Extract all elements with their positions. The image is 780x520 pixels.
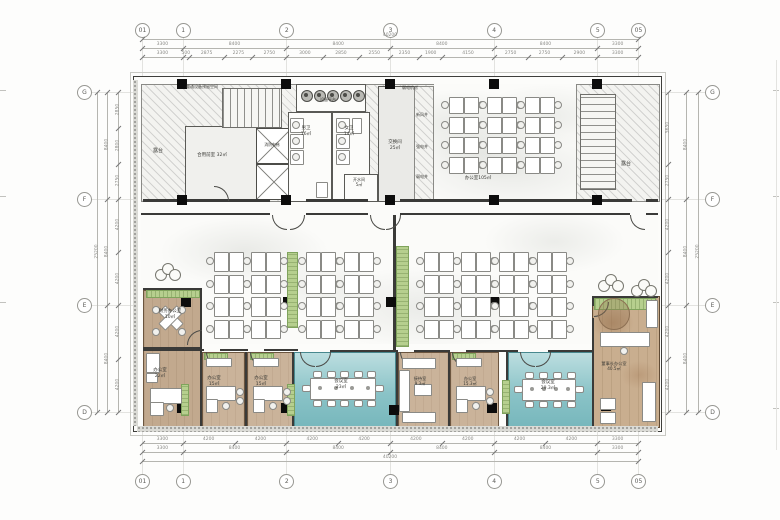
side-table	[600, 398, 616, 410]
dimension-value: 8400	[105, 235, 110, 269]
room-label: 女卫 14㎡	[319, 126, 379, 138]
chair	[206, 325, 214, 333]
chair	[479, 161, 487, 169]
interior-wall	[414, 350, 450, 352]
desk	[461, 297, 476, 317]
desk	[251, 275, 266, 295]
grid-bubble: 05	[631, 474, 646, 489]
chair	[340, 400, 349, 407]
desk	[251, 297, 266, 317]
chair	[298, 325, 306, 333]
desk	[214, 297, 229, 317]
desk-return	[456, 399, 468, 413]
dimension-value: 8400	[321, 42, 355, 47]
chair	[336, 257, 344, 265]
room-label: 会议室 29.3㎡	[518, 380, 578, 392]
desk	[306, 320, 321, 340]
desk	[487, 97, 502, 114]
chair	[416, 257, 424, 265]
dimension-value: 4200	[295, 437, 329, 442]
desk	[537, 252, 552, 272]
chair	[479, 141, 487, 149]
chair	[453, 257, 461, 265]
desk	[344, 275, 359, 295]
desk	[552, 275, 567, 295]
sofa	[402, 358, 436, 369]
desk	[266, 275, 281, 295]
room-label: 弱电机房	[380, 85, 440, 90]
planter-strip	[146, 290, 200, 298]
grid-bubble: G	[705, 85, 720, 100]
grid-bubble: 5	[590, 23, 605, 38]
chair	[243, 280, 251, 288]
desk	[229, 275, 244, 295]
desk	[464, 97, 479, 114]
workstation-cluster	[448, 95, 478, 175]
sofa	[642, 382, 656, 422]
desk	[476, 320, 491, 340]
dimension-value: 3300	[145, 446, 179, 451]
chair	[441, 161, 449, 169]
executive-desk	[600, 332, 650, 347]
desk	[359, 252, 374, 272]
dimension-value: 4200	[666, 261, 671, 295]
desk	[424, 252, 439, 272]
desk	[464, 157, 479, 174]
edge-tick	[0, 196, 6, 197]
desk	[449, 157, 464, 174]
chair	[336, 302, 344, 310]
desk	[540, 117, 555, 134]
dimension-value: 3000	[288, 51, 322, 56]
dimension-value: 4200	[399, 437, 433, 442]
dimension-value: 8400	[528, 446, 562, 451]
dimension-value: 2750	[528, 51, 562, 56]
workstation-cluster	[524, 95, 554, 175]
dimension-value: 2750	[494, 51, 528, 56]
toilet	[338, 153, 346, 161]
structural-column	[489, 79, 499, 89]
sofa	[253, 358, 279, 367]
workstation-cluster	[250, 250, 280, 340]
desk	[499, 252, 514, 272]
dimension-value: 4200	[116, 208, 121, 242]
grid-bubble: F	[77, 192, 92, 207]
interior-wall	[143, 349, 204, 351]
chair	[517, 141, 525, 149]
desk	[514, 275, 529, 295]
dimension-value: 2275	[221, 51, 255, 56]
chair	[472, 402, 480, 410]
room-label: 弱电井	[392, 174, 452, 179]
structural-column	[386, 297, 396, 307]
desk	[552, 252, 567, 272]
chair	[269, 402, 277, 410]
desk	[344, 297, 359, 317]
chair	[178, 328, 186, 336]
structural-column	[281, 79, 291, 89]
dimension-value: 4200	[116, 368, 121, 402]
desk	[537, 275, 552, 295]
desk	[552, 297, 567, 317]
desk	[525, 137, 540, 154]
desk	[514, 320, 529, 340]
desk	[461, 252, 476, 272]
grid-bubble: E	[705, 298, 720, 313]
chair	[373, 325, 381, 333]
chair	[491, 257, 499, 265]
chair	[354, 371, 363, 378]
chair	[453, 302, 461, 310]
grid-bubble: 5	[590, 474, 605, 489]
chair	[566, 325, 574, 333]
structural-column	[489, 195, 499, 205]
chair	[539, 372, 548, 379]
chair	[243, 325, 251, 333]
dimension-value: 4200	[116, 315, 121, 349]
chair	[529, 325, 537, 333]
desk	[439, 275, 454, 295]
dimension-value: 3300	[601, 51, 635, 56]
chair	[517, 121, 525, 129]
room-label: 董事长办公室 40.5㎡	[584, 361, 644, 372]
dimension-value: 4200	[554, 437, 588, 442]
dimension-value: 2550	[357, 51, 391, 56]
chair	[479, 101, 487, 109]
toilet	[292, 153, 300, 161]
grid-bubble: F	[705, 192, 720, 207]
grid-bubble: 05	[631, 23, 646, 38]
interior-wall	[646, 213, 658, 215]
sofa	[402, 412, 436, 423]
grid-bubble: 01	[135, 23, 150, 38]
dimension-value: 4200	[503, 437, 537, 442]
room-label: 消防电梯	[242, 143, 302, 148]
sofa	[206, 358, 232, 367]
dimension-line	[142, 39, 638, 40]
dimension-value: 25200	[696, 235, 701, 269]
floor-plan-canvas: 010111223344550505GGFFEEDD 4020033008400…	[0, 0, 780, 520]
desk	[251, 320, 266, 340]
grid-bubble: 3	[383, 474, 398, 489]
interior-wall	[220, 349, 248, 351]
chair	[525, 401, 534, 408]
workstation-cluster	[343, 250, 373, 340]
room-label: 办公室 15.3㎡	[440, 376, 500, 387]
desk	[487, 117, 502, 134]
dimension-value: 2875	[190, 51, 224, 56]
dimension-value: 2900	[562, 51, 596, 56]
dimension-value: 2750	[666, 164, 671, 198]
grid-bubble: D	[705, 405, 720, 420]
dimension-value: 2800	[116, 128, 121, 162]
desk	[266, 297, 281, 317]
chair	[553, 401, 562, 408]
grid-bubble: E	[77, 298, 92, 313]
desk	[359, 275, 374, 295]
dimension-value: 40200	[373, 33, 407, 38]
plant-symbol	[169, 269, 181, 281]
dimension-value: 8400	[528, 42, 562, 47]
core-stair	[222, 88, 282, 128]
dimension-value: 8400	[684, 128, 689, 162]
desk	[214, 320, 229, 340]
dimension-value: 8400	[684, 235, 689, 269]
chair	[354, 400, 363, 407]
interior-wall	[306, 199, 368, 202]
chair	[206, 280, 214, 288]
dimension-value: 4200	[451, 437, 485, 442]
chair	[206, 257, 214, 265]
desk	[514, 252, 529, 272]
dimension-value: 8400	[684, 341, 689, 375]
desk	[540, 97, 555, 114]
dimension-value: 8400	[105, 341, 110, 375]
chair	[491, 302, 499, 310]
grid-bubble: 4	[487, 474, 502, 489]
chair	[453, 280, 461, 288]
grid-bubble: 01	[135, 474, 150, 489]
chair	[554, 101, 562, 109]
chair	[327, 400, 336, 407]
desk	[214, 252, 229, 272]
chair	[327, 371, 336, 378]
desk	[439, 320, 454, 340]
chair	[554, 121, 562, 129]
grid-bubble: G	[77, 85, 92, 100]
dimension-line	[142, 461, 638, 462]
dimension-value: 4200	[666, 315, 671, 349]
chair	[222, 402, 230, 410]
cabinet	[646, 300, 658, 328]
desk	[499, 320, 514, 340]
interior-wall	[141, 213, 270, 215]
dimension-value: 4150	[451, 51, 485, 56]
desk	[306, 297, 321, 317]
chair	[517, 101, 525, 109]
desk	[359, 297, 374, 317]
dimension-value: 2850	[116, 93, 121, 127]
desk	[306, 275, 321, 295]
interior-wall	[143, 347, 202, 349]
chair	[313, 400, 322, 407]
toilet	[338, 137, 346, 145]
desk	[449, 117, 464, 134]
desk	[514, 297, 529, 317]
desk	[214, 275, 229, 295]
desk	[359, 320, 374, 340]
interior-wall	[466, 350, 518, 352]
chair	[298, 280, 306, 288]
desk	[502, 137, 517, 154]
room-label: 会议室 23㎡	[311, 379, 371, 391]
desk	[344, 320, 359, 340]
chair	[373, 280, 381, 288]
workstation-cluster	[305, 250, 335, 340]
room-label: 露台	[596, 161, 656, 168]
interior-wall	[143, 199, 270, 202]
room-label: 开水间 5㎡	[329, 177, 389, 187]
chair	[416, 280, 424, 288]
desk	[502, 157, 517, 174]
desk	[537, 297, 552, 317]
dimension-value: 4200	[666, 208, 671, 242]
grid-bubble: 1	[176, 23, 191, 38]
interior-wall	[306, 213, 368, 215]
desk	[251, 252, 266, 272]
desk	[464, 137, 479, 154]
dimension-value: 3300	[601, 437, 635, 442]
grid-bubble: 4	[487, 23, 502, 38]
south-exterior-wall	[137, 426, 658, 432]
grid-bubble: 1	[176, 474, 191, 489]
chair	[441, 101, 449, 109]
interior-wall	[264, 349, 298, 351]
chair	[566, 280, 574, 288]
room-label: 财务办公室 10㎡	[140, 309, 200, 321]
sink-counter	[316, 182, 328, 198]
dimension-value: 3300	[601, 446, 635, 451]
dimension-value: 4200	[666, 368, 671, 402]
chair	[302, 385, 311, 392]
desk	[229, 297, 244, 317]
desk	[537, 320, 552, 340]
chair	[283, 388, 291, 396]
chair	[298, 257, 306, 265]
grid-bubble: D	[77, 405, 92, 420]
chair	[517, 161, 525, 169]
desk	[476, 275, 491, 295]
chair	[206, 302, 214, 310]
chair	[539, 401, 548, 408]
desk	[321, 252, 336, 272]
interior-wall	[592, 318, 594, 426]
room-label: 合用前室 32㎡	[182, 153, 242, 159]
desk	[439, 252, 454, 272]
room-label: 强电井	[392, 144, 452, 149]
chair	[491, 280, 499, 288]
chair	[416, 302, 424, 310]
structural-column	[177, 195, 187, 205]
chair	[236, 388, 244, 396]
chair	[280, 325, 288, 333]
interior-wall	[245, 352, 247, 426]
chair	[453, 325, 461, 333]
chair	[486, 388, 494, 396]
desk	[229, 320, 244, 340]
dimension-value: 3300	[145, 42, 179, 47]
chair	[313, 371, 322, 378]
room-label: 办公室 15㎡	[231, 376, 291, 388]
chair	[283, 397, 291, 405]
desk	[540, 157, 555, 174]
desk	[439, 297, 454, 317]
dimension-value: 5650	[666, 110, 671, 144]
chair	[525, 372, 534, 379]
dimension-value: 25200	[95, 235, 100, 269]
desk	[476, 297, 491, 317]
chair	[441, 121, 449, 129]
chair	[529, 280, 537, 288]
workstation-cluster	[486, 95, 516, 175]
interior-wall	[646, 199, 658, 202]
desk	[464, 117, 479, 134]
chair	[336, 280, 344, 288]
chair	[479, 121, 487, 129]
desk	[306, 252, 321, 272]
dimension-value: 3300	[145, 437, 179, 442]
desk	[229, 252, 244, 272]
dimension-value: 8400	[321, 446, 355, 451]
chair	[486, 397, 494, 405]
dimension-value: 4200	[116, 261, 121, 295]
dimension-value: 4200	[243, 437, 277, 442]
desk	[424, 320, 439, 340]
chair	[554, 161, 562, 169]
desk	[321, 297, 336, 317]
chair	[553, 372, 562, 379]
dimension-value: 8400	[425, 446, 459, 451]
interior-wall	[548, 350, 592, 352]
chair	[416, 325, 424, 333]
dimension-value: 8400	[425, 42, 459, 47]
desk	[321, 275, 336, 295]
chair	[529, 257, 537, 265]
chair	[336, 325, 344, 333]
chair	[529, 302, 537, 310]
planter-strip	[287, 252, 298, 328]
chair	[567, 401, 576, 408]
desk-return	[150, 402, 164, 416]
desk	[266, 320, 281, 340]
dimension-value: 4200	[347, 437, 381, 442]
desk	[552, 320, 567, 340]
chair	[243, 302, 251, 310]
dimension-value: 4200	[192, 437, 226, 442]
chair	[491, 325, 499, 333]
dimension-value: 8400	[105, 128, 110, 162]
sofa	[456, 358, 482, 367]
planter-strip	[502, 380, 510, 414]
room-label: 办公室 22㎡	[130, 368, 190, 380]
desk	[502, 97, 517, 114]
room-label: 新风井	[392, 112, 452, 117]
chair	[340, 371, 349, 378]
desk	[344, 252, 359, 272]
dimension-value: 2750	[116, 164, 121, 198]
structural-column	[385, 195, 395, 205]
desk	[499, 275, 514, 295]
chair	[567, 372, 576, 379]
planter-strip	[181, 384, 189, 416]
workstation-cluster	[498, 250, 528, 340]
workstation-cluster	[423, 250, 453, 340]
grid-bubble: 2	[279, 23, 294, 38]
desk	[424, 275, 439, 295]
structural-column	[592, 195, 602, 205]
plant-symbol	[645, 285, 657, 297]
edge-tick	[0, 90, 6, 91]
side-table	[600, 412, 616, 424]
desk	[540, 137, 555, 154]
structural-column	[281, 195, 291, 205]
chair	[236, 397, 244, 405]
edge-line	[776, 60, 777, 450]
chair	[375, 385, 384, 392]
chair	[620, 347, 628, 355]
desk	[461, 275, 476, 295]
dimension-value: 2850	[324, 51, 358, 56]
